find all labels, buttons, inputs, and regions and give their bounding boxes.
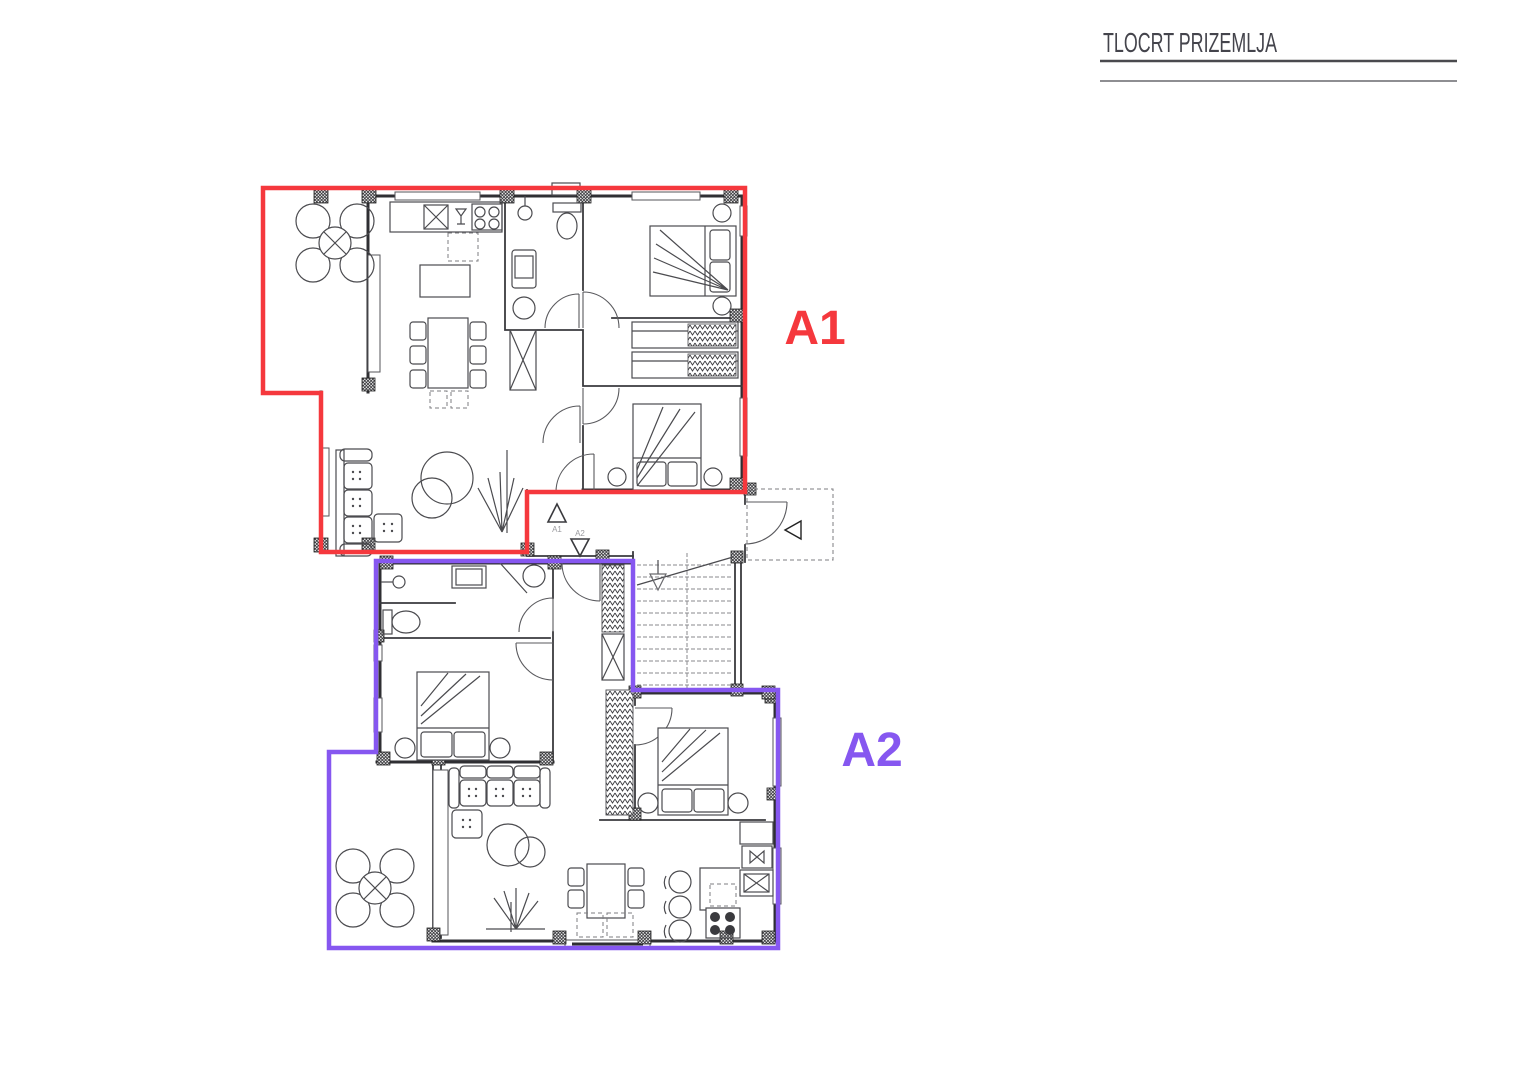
kitchen-island [420,265,470,297]
sink-icon [513,297,535,319]
wardrobe-icon [602,565,624,632]
windows [321,192,781,949]
bar-stool-icon [669,871,691,893]
decor-circle [487,824,529,866]
wardrobe-icon [632,322,738,378]
stairs-icon [637,553,733,690]
title-block: TLOCRT PRIZEMLJA [1100,27,1457,81]
bed-icon [638,728,748,815]
toilet-icon [553,203,581,239]
entry-marker-a1: A1 [548,504,566,534]
door-arc [583,292,619,328]
entrance-canopy [747,489,833,560]
window [632,192,700,200]
door-arc [545,294,579,328]
window [368,255,380,372]
door-arc [543,406,580,443]
entry-arrow-up-icon [548,504,566,522]
fridge-icon [750,851,764,863]
floor-plan-page: TLOCRT PRIZEMLJA [0,0,1527,1080]
sink-icon [740,870,773,896]
entry-marker-a2-label: A2 [575,529,585,538]
page-title: TLOCRT PRIZEMLJA [1103,27,1277,58]
wall-columns [314,189,779,944]
hall-cabinet [510,330,536,390]
label-apartment-a1: A1 [784,302,845,355]
decor-circle [515,837,545,867]
bed-icon [395,672,510,760]
sofa-icon [449,766,550,838]
glass-icon [456,209,466,224]
floor-plan: TLOCRT PRIZEMLJA [0,0,1527,1080]
shower-icon [500,563,545,593]
shaft-box [602,634,624,680]
toilet-icon [383,610,420,634]
furniture-a1 [296,196,738,556]
kitchen-counter [390,202,502,297]
stove-icon [472,204,502,230]
fan-symbol [478,450,523,533]
bed-icon [608,404,722,490]
entry-marker-a1-label: A1 [552,525,562,534]
door-arc [519,598,553,632]
window [395,192,480,200]
faucet-icon [393,576,405,588]
dining-table-icon [410,318,486,408]
door-arc [583,388,619,424]
decor-circle [412,478,452,518]
window [433,770,448,935]
fan-symbol [486,888,545,932]
building-entrance-door [745,489,833,560]
wardrobe-icon [606,690,633,815]
bar-stool-icon [669,896,691,918]
kitchen-a2 [706,822,773,938]
bar-stool-icon [669,920,691,942]
furniture-a2 [336,563,773,942]
bathroom-sink [381,566,486,588]
terrace-table-icon [296,204,374,282]
bed-icon [650,204,736,315]
entrance-arrow-icon [785,521,801,539]
entry-arrow-down-icon [571,539,589,556]
boiler-icon [518,196,532,220]
stairs-down-arrow-icon [650,574,666,590]
door-arc [556,454,594,492]
door-arc [516,643,553,680]
dining-table-icon [568,864,644,937]
terrace-table-icon [336,849,414,927]
entry-marker-a2: A2 [571,529,589,556]
label-apartment-a2: A2 [841,724,902,777]
door-arc [562,563,600,601]
washing-machine-icon [512,250,536,288]
